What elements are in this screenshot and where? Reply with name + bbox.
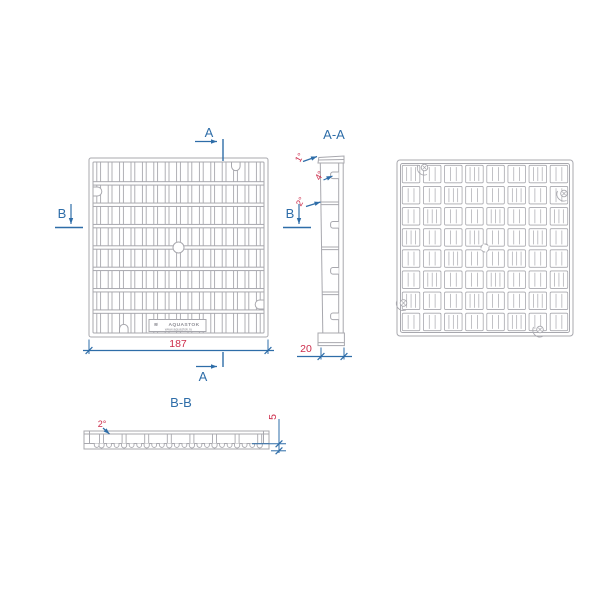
back-view	[396, 160, 573, 337]
section-a-marker-top-label: A	[205, 125, 214, 140]
bb-angle-wall-label: 2°	[98, 419, 107, 429]
brand-logo-icon: ≋	[154, 322, 158, 328]
section-b-marker-mid-label: B	[286, 206, 295, 221]
section-a-marker-bottom-label: A	[199, 369, 208, 384]
front-width-dimension: 187	[169, 338, 187, 350]
technical-drawing: A A B B A-A B-B 187 20 5 1° 4° 2° 2° ≋ A…	[0, 0, 600, 600]
section-bb-title: B-B	[170, 395, 192, 410]
section-b-marker-left-label: B	[58, 206, 67, 221]
aa-angle-wall-label: 2°	[294, 195, 307, 208]
brand-url-label: www.aquastok.ru	[165, 328, 192, 332]
aa-angle-top-label: 1°	[293, 151, 306, 164]
section-aa-title: A-A	[323, 127, 345, 142]
aa-depth-dimension: 20	[300, 343, 312, 355]
section-bb-view	[84, 431, 269, 449]
bb-tooth-height-dimension: 5	[267, 414, 279, 420]
drawing-canvas: A A B B A-A B-B 187 20 5 1° 4° 2° 2° ≋ A…	[0, 0, 600, 600]
section-aa-view	[318, 156, 344, 346]
front-view	[89, 158, 268, 337]
